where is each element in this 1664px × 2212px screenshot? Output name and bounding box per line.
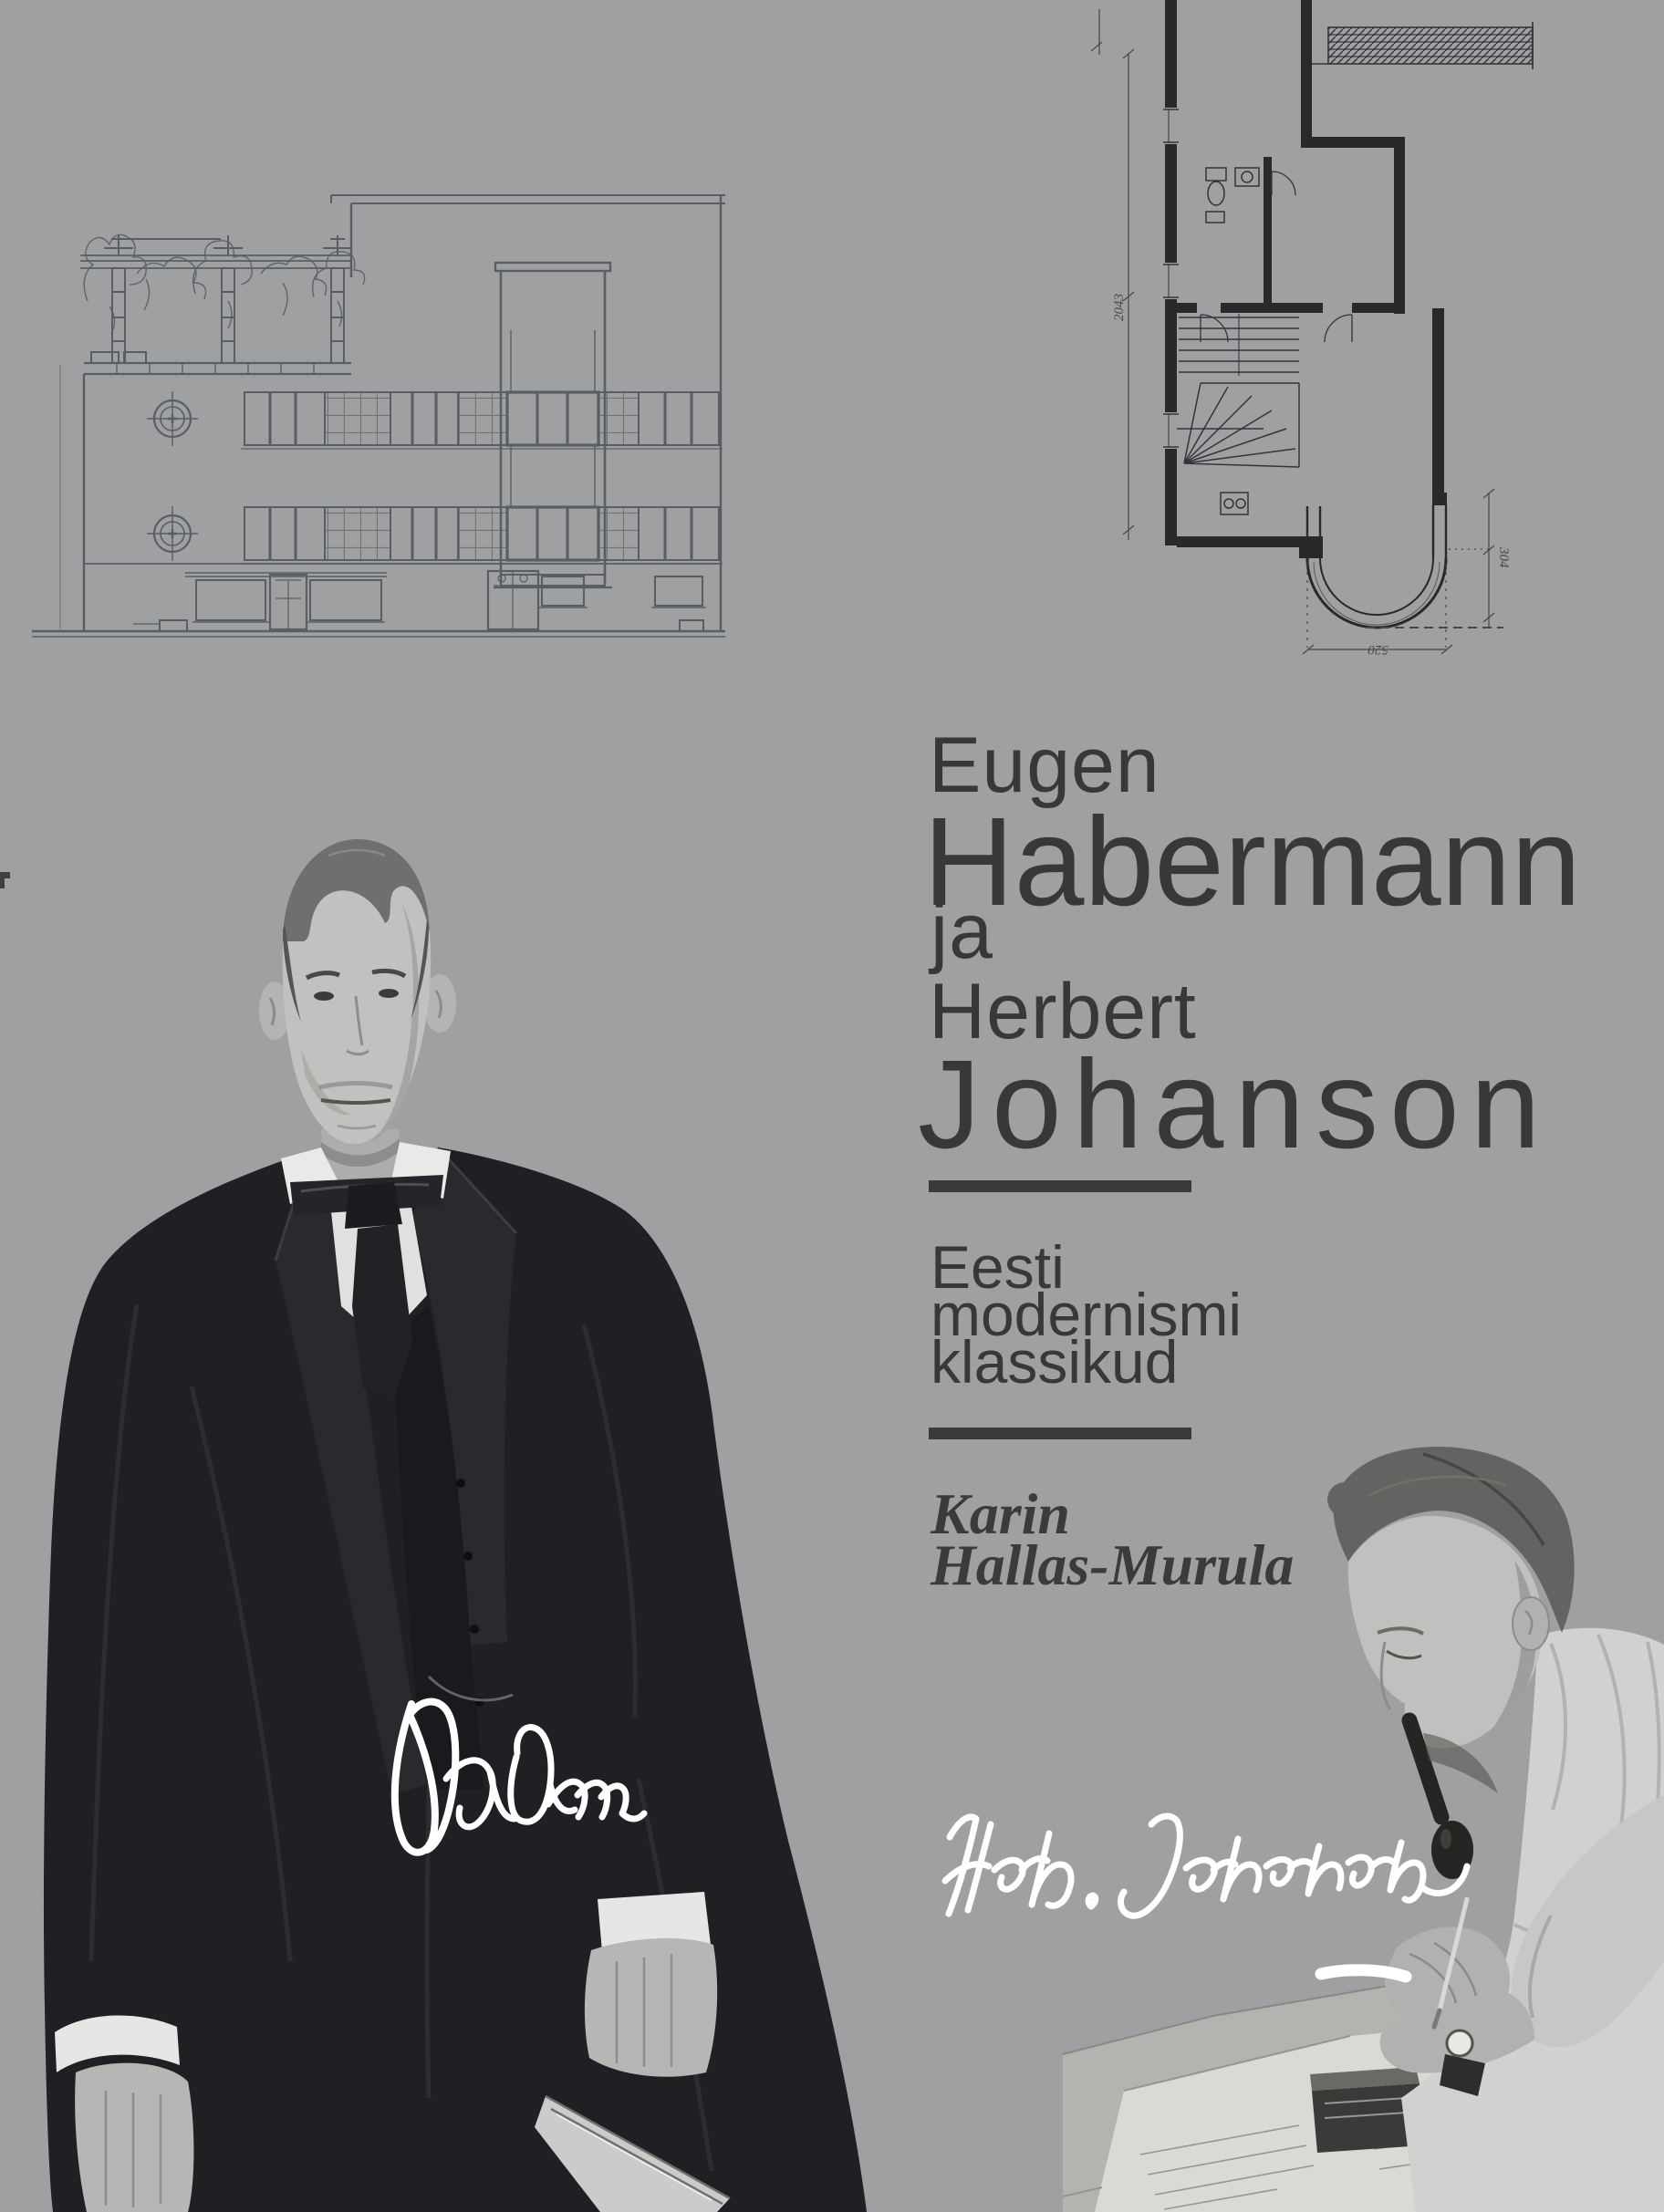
title-line-johanson: Johanson [918, 1042, 1552, 1168]
series-rule-top [929, 1180, 1191, 1192]
edge-mark [0, 872, 10, 888]
series-rule-bottom [929, 1428, 1191, 1439]
title-line-habermann: Habermann [923, 799, 1581, 925]
plan-dimension-left: 2043 [1112, 294, 1127, 321]
title-line-ja: ja [931, 892, 993, 971]
author-last-name: Hallas-Murula [931, 1536, 1294, 1594]
plan-dimension-bottom: 520 [1368, 642, 1388, 657]
floor-plan-drawing: Line drawing: apartment floor plan with … [1091, 0, 1533, 657]
series-line-klassikud: klassikud [931, 1332, 1178, 1392]
plan-dimension-right: 304 [1496, 546, 1511, 568]
photo-habermann: Black-and-white photograph of Eugen Habe… [44, 839, 867, 2212]
signature-johanson: Herb. Johanson handwritten signature [945, 1816, 1467, 1977]
elevation-drawing: Line drawing: street elevation of a mode… [32, 195, 725, 637]
book-cover: { "canvas": { "width": 1824, "height": 2… [0, 0, 1664, 2212]
